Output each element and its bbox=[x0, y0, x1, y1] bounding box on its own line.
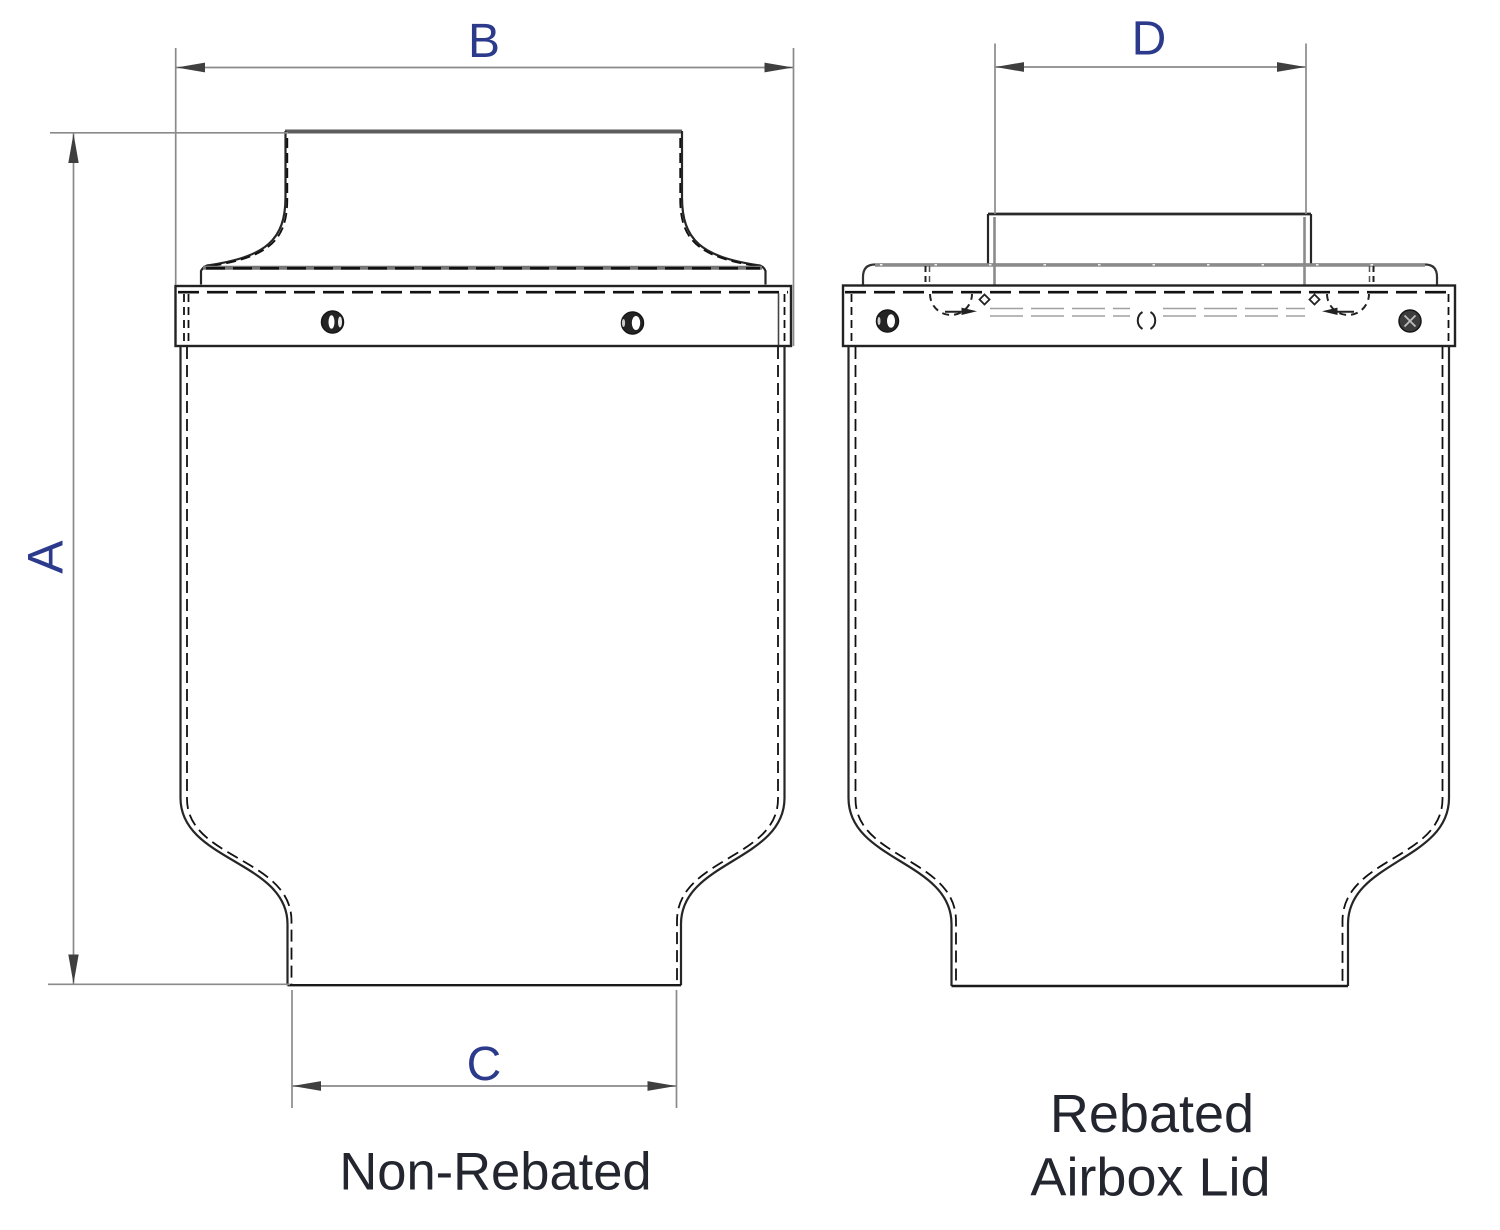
svg-text:D: D bbox=[1132, 13, 1167, 66]
svg-text:Non-Rebated: Non-Rebated bbox=[339, 1143, 651, 1202]
svg-text:Rebated: Rebated bbox=[1050, 1084, 1254, 1144]
svg-text:Airbox Lid: Airbox Lid bbox=[1030, 1148, 1270, 1208]
svg-text:A: A bbox=[18, 540, 74, 574]
svg-text:B: B bbox=[468, 15, 500, 68]
svg-text:C: C bbox=[467, 1038, 502, 1091]
